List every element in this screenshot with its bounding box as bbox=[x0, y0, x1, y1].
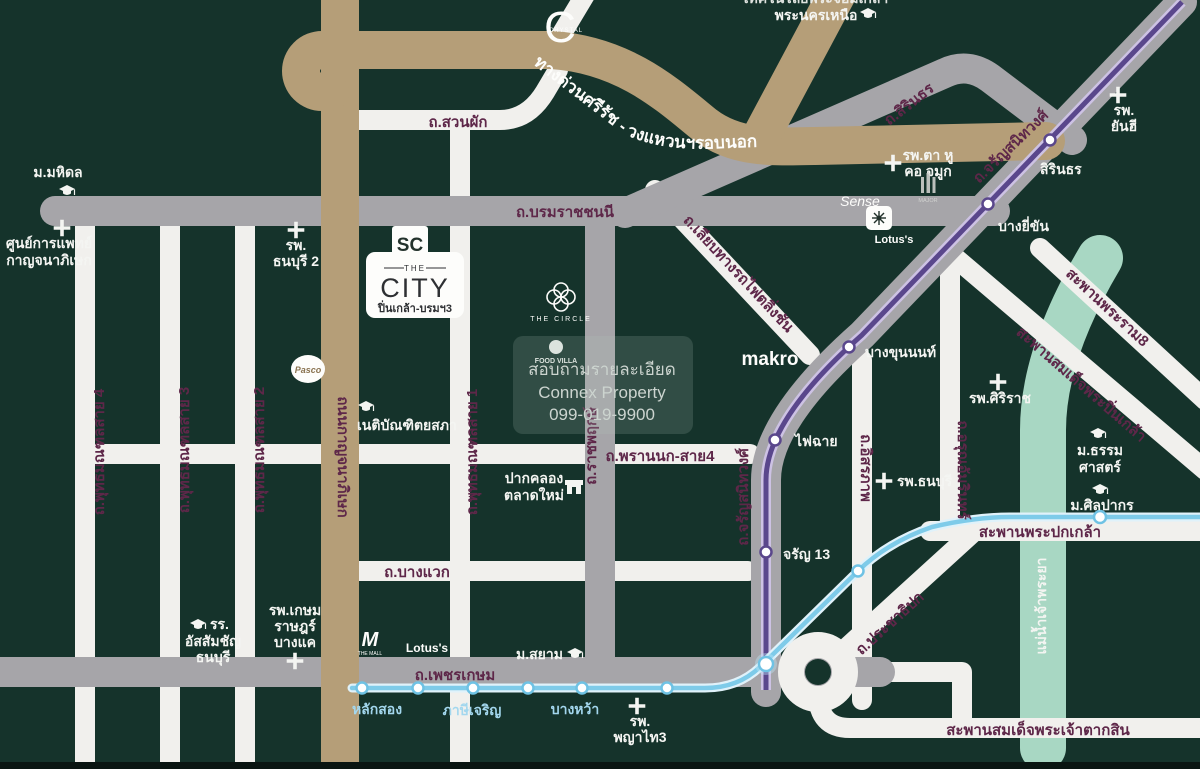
label-phutthamonthon1: ถ.พุทธมณฑลสาย 1 bbox=[464, 389, 482, 516]
label-station-charan13: จรัญ 13 bbox=[783, 546, 830, 563]
label-station-bang-khun-non: บางขุนนนท์ bbox=[865, 344, 936, 361]
city-sub: ปิ่นเกล้า-บรมฯ3 bbox=[377, 300, 452, 315]
label-suanphak: ถ.สวนผัก bbox=[429, 114, 488, 131]
river-label: แม่น้ำเจ้าพระยา bbox=[1030, 558, 1049, 655]
market-icon bbox=[565, 480, 583, 494]
station-sirinthon bbox=[1045, 135, 1056, 146]
label-charansanitwong-lower: ถ.จรัญสนิทวงศ์ bbox=[734, 448, 752, 546]
label-thonburi2-1: รพ. bbox=[286, 237, 307, 253]
label-itsaraphap: ถ.อิสรภาพ bbox=[857, 434, 875, 502]
station-lak-song bbox=[357, 683, 368, 694]
label-netibandit: เนติบัณฑิตยสภา bbox=[357, 417, 457, 433]
label-taksin-bridge: สะพานสมเด็จพระเจ้าตากสิน bbox=[946, 720, 1130, 739]
label-pak-khlong-2: ตลาดใหม่ bbox=[504, 486, 564, 503]
label-assumption-3: ธนบุรี bbox=[196, 649, 231, 666]
label-station-bang-yi-khan: บางยี่ขัน bbox=[998, 216, 1049, 234]
mall-m: M bbox=[362, 629, 380, 651]
label-station-sirinthon: สิรินธร bbox=[1040, 161, 1083, 177]
circle-text: THE CIRCLE bbox=[530, 316, 592, 323]
mall-text: THE MALL bbox=[358, 651, 383, 657]
station-bang-yi-khan bbox=[983, 199, 994, 210]
station-tha-phra bbox=[759, 657, 773, 671]
label-silpakorn: ม.ศิลปากร bbox=[1070, 497, 1134, 513]
station-blue-6 bbox=[662, 683, 673, 694]
label-bang-waek: ถ.บางแวก bbox=[384, 564, 450, 581]
the-pasco-logo: Pasco bbox=[291, 355, 325, 383]
label-golden-jubilee-1: ศูนย์การแพทย์ bbox=[6, 235, 92, 252]
the-city-sign: THE CITY ปิ่นเกล้า-บรมฯ3 bbox=[366, 252, 464, 318]
station-blue-2 bbox=[413, 683, 424, 694]
label-thammasat-2: ศาสตร์ bbox=[1079, 459, 1121, 475]
label-phran-nok: ถ.พรานนก-สาย4 bbox=[606, 448, 716, 465]
crystal-text: CRYSTAL bbox=[549, 28, 583, 34]
watermark-line3: 099-019-9900 bbox=[549, 405, 655, 424]
label-thonburi-hospital: รพ.ธนบุรี bbox=[897, 473, 953, 490]
location-map: ถ.สวนผัก ถ.บรมราชชนนี ถ.สิรินธร ถ.จรัญสน… bbox=[0, 0, 1200, 769]
station-diagonal bbox=[853, 566, 864, 577]
station-phasi-charoen bbox=[468, 683, 479, 694]
label-station-fai-chai: ไฟฉาย bbox=[793, 432, 838, 449]
label-station-phasi-charoen: ภาษีเจริญ bbox=[443, 702, 502, 719]
label-station-bang-wa: บางหว้า bbox=[551, 701, 600, 717]
station-fai-chai bbox=[770, 435, 781, 446]
label-phetkasem: ถ.เพชรเกษม bbox=[415, 667, 496, 684]
makro-logo: makro bbox=[741, 349, 798, 370]
label-borommaratchachonnani: ถ.บรมราชชนนี bbox=[516, 204, 615, 221]
label-north-tech-partial: เทคโนโลยีพระจอมเกล้า bbox=[744, 0, 889, 6]
pasco-text: Pasco bbox=[295, 365, 322, 375]
label-phyathai3-2: พญาไท3 bbox=[613, 728, 666, 746]
label-pak-khlong-1: ปากคลอง bbox=[505, 470, 564, 486]
label-yanhee-2: ยันฮี bbox=[1111, 118, 1137, 134]
city-name: CITY bbox=[380, 273, 450, 303]
lotus-bottom-logo: Lotus's bbox=[406, 641, 449, 655]
station-bang-wa bbox=[577, 683, 588, 694]
station-bang-khun-non bbox=[844, 342, 855, 353]
label-kasemrad-2: ราษฎร์ bbox=[274, 618, 316, 635]
label-north-bangkok-univ: พระนครเหนือ bbox=[775, 7, 858, 23]
label-kasemrad-1: รพ.เกษม bbox=[269, 602, 321, 618]
label-thonburi2-2: ธนบุรี 2 bbox=[273, 253, 319, 270]
label-phutthamonthon4: ถ.พุทธมณฑลสาย 4 bbox=[91, 388, 109, 515]
major-logo: MAJOR bbox=[918, 173, 937, 204]
label-yanhee-1: รพ. bbox=[1114, 102, 1135, 118]
label-kasemrad-3: บางแค bbox=[274, 634, 316, 650]
label-thammasat-1: ม.ธรรม bbox=[1077, 442, 1123, 458]
label-station-lak-song: หลักสอง bbox=[352, 701, 402, 717]
wongwian-yai-roundabout bbox=[791, 645, 845, 699]
station-blue-4 bbox=[523, 683, 534, 694]
major-text: MAJOR bbox=[918, 198, 937, 204]
lotus-top-text: Lotus's bbox=[875, 234, 914, 246]
label-golden-jubilee-2: กาญจนาภิเษก bbox=[6, 252, 92, 269]
watermark: สอบถามรายละเอียด Connex Property 099-019… bbox=[513, 336, 693, 434]
label-mahidol: ม.มหิดล bbox=[33, 164, 82, 180]
label-phyathai3-1: รพ. bbox=[630, 713, 651, 729]
bottom-strip bbox=[0, 762, 1200, 769]
label-phutthamonthon2: ถ.พุทธมณฑลสาย 2 bbox=[251, 387, 269, 514]
label-arun-amarin: ถ.อรุณอัมรินทร์ bbox=[953, 420, 972, 520]
watermark-line2: Connex Property bbox=[538, 383, 666, 402]
label-siam-univ: ม.สยาม bbox=[516, 646, 563, 662]
label-assumption-2: อัสสัมชัญ bbox=[185, 633, 241, 650]
label-phutthamonthon3: ถ.พุทธมณฑลสาย 3 bbox=[176, 387, 194, 514]
station-charan13 bbox=[761, 547, 772, 558]
watermark-line1: สอบถามรายละเอียด bbox=[528, 360, 676, 379]
label-siriraj: รพ.ศิริราช bbox=[969, 390, 1031, 406]
label-assumption-1: รร. bbox=[210, 616, 229, 632]
city-the: THE bbox=[404, 264, 426, 273]
label-ent-hospital-1: รพ.ตา หู bbox=[903, 147, 954, 164]
label-kanchanaphisek: ถนนกาญจนาภิเษก bbox=[334, 396, 352, 517]
label-phra-pokklao-bridge: สะพานพระปกเกล้า bbox=[979, 524, 1101, 541]
